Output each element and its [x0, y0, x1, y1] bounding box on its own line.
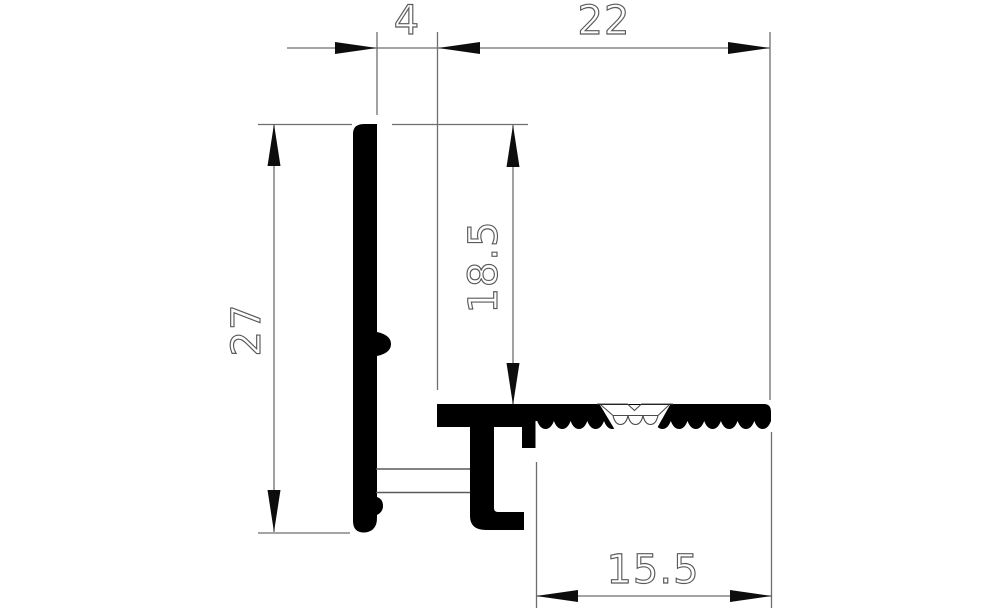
dim-label-slot-width: 4	[394, 0, 420, 44]
dimension-upstand-height: 18.5	[461, 125, 520, 405]
dimension-base-length: 22	[578, 0, 770, 54]
base-flange-shape	[437, 404, 771, 530]
dimension-serrated-length: 15.5	[536, 547, 772, 602]
arrowhead-upstand-top	[507, 125, 520, 167]
arrowhead-serrated-left	[536, 590, 578, 602]
drawing-canvas: 4 22 27 18.5 15.5	[0, 0, 1000, 614]
dimension-overall-height: 27	[224, 124, 281, 532]
dim-label-overall-height: 27	[224, 304, 270, 357]
dim-label-upstand-height: 18.5	[461, 220, 507, 313]
dimension-slot-width: 4	[287, 0, 770, 54]
dim-label-serrated-length: 15.5	[606, 547, 699, 593]
arrowhead-serrated-right	[730, 590, 772, 602]
dim-label-base-length: 22	[578, 0, 631, 44]
arrowhead-base-right	[728, 42, 770, 54]
arrowhead-height-top	[268, 124, 281, 166]
upstand-wall-shape	[353, 124, 391, 533]
profile-drawing: 4 22 27 18.5 15.5	[0, 0, 1000, 614]
profile-geometry	[353, 124, 771, 533]
arrowhead-height-bottom	[268, 490, 281, 532]
arrowhead-upstand-bottom	[507, 363, 520, 405]
web-outline-lines	[376, 469, 470, 493]
arrowhead-slot-left	[335, 42, 377, 54]
arrowhead-slot-right	[438, 42, 480, 54]
